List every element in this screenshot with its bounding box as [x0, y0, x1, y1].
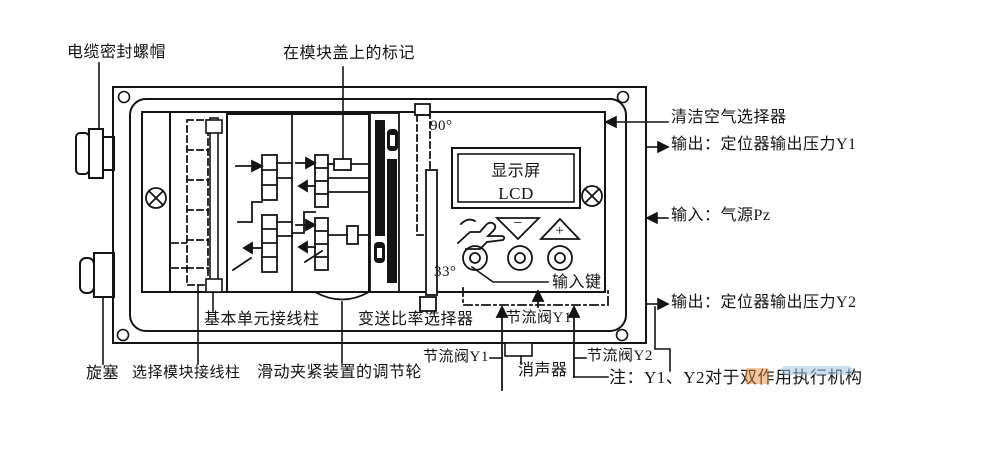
clamp-adjustment-wheel — [315, 292, 369, 300]
corner-screw-hole — [119, 92, 130, 103]
clean-air-label: 清洁空气选择器 — [671, 109, 787, 127]
input-pz-arrow — [647, 213, 668, 223]
select-module-terminal-strip — [172, 120, 208, 285]
corner-screw-hole — [118, 330, 129, 341]
electronics-module — [227, 114, 369, 292]
lcd-label-en: LCD — [452, 184, 580, 204]
note-label: 注：Y1、Y2对于双作用执行机构 — [609, 368, 863, 388]
input-keys-leader — [472, 267, 548, 282]
ratio-selector-label: 变送比率选择器 — [358, 311, 474, 329]
device-line-art — [0, 0, 993, 470]
angle-33-label: 33° — [434, 264, 457, 281]
throttle-y2-label: 节流阀Y2 — [587, 348, 653, 365]
positioner-diagram: 电缆密封螺帽 在模块盖上的标记 90° 显示屏 LCD 33° − + 输入键 … — [0, 0, 993, 470]
cable-gland — [76, 129, 114, 178]
angle-90-label: 90° — [430, 118, 453, 135]
push-button — [548, 246, 572, 270]
input-pz-label: 输入：气源Pz — [671, 207, 771, 225]
base-unit-terminals-label: 基本单元接线柱 — [204, 311, 320, 329]
screw-icon — [582, 186, 602, 206]
output-y2-label: 输出：定位器输出压力Y2 — [671, 294, 857, 312]
cable-gland-label: 电缆密封螺帽 — [67, 44, 166, 62]
y2-note-elbow — [655, 307, 670, 371]
module-cover-mark-label: 在模块盖上的标记 — [283, 45, 415, 63]
module-left-terminals — [233, 155, 292, 272]
plug-label: 旋塞 — [86, 365, 119, 383]
corner-screw-hole — [617, 330, 628, 341]
module-right-terminals — [292, 155, 369, 270]
output-y1-label: 输出：定位器输出压力Y1 — [671, 136, 857, 154]
drain-plug — [80, 253, 114, 297]
clean-air-arrow — [606, 117, 668, 127]
plus-key-glyph: + — [547, 223, 573, 240]
muffler — [505, 343, 532, 364]
left-panel-strip — [146, 112, 170, 292]
throttle-y1-label: 节流阀Y1 — [423, 349, 489, 366]
minus-key-glyph: − — [504, 215, 532, 233]
screw-icon — [146, 188, 166, 208]
lcd-label-cn: 显示屏 — [452, 163, 580, 181]
output-y2-arrow — [646, 299, 668, 309]
muffler-label: 消声器 — [518, 362, 568, 380]
corner-screw-hole — [618, 92, 629, 103]
select-module-terminals-label: 选择模块接线柱 — [132, 365, 241, 382]
throttle-y1-inner-label: 节流阀Y1 — [506, 310, 572, 327]
input-keys-label: 输入键 — [552, 274, 602, 292]
output-y1-arrow — [646, 142, 668, 152]
push-button — [508, 246, 532, 270]
module-cover-marking — [370, 113, 399, 292]
slide-clamp-label: 滑动夹紧装置的调节轮 — [257, 364, 422, 382]
hand-key-icon — [458, 220, 504, 249]
